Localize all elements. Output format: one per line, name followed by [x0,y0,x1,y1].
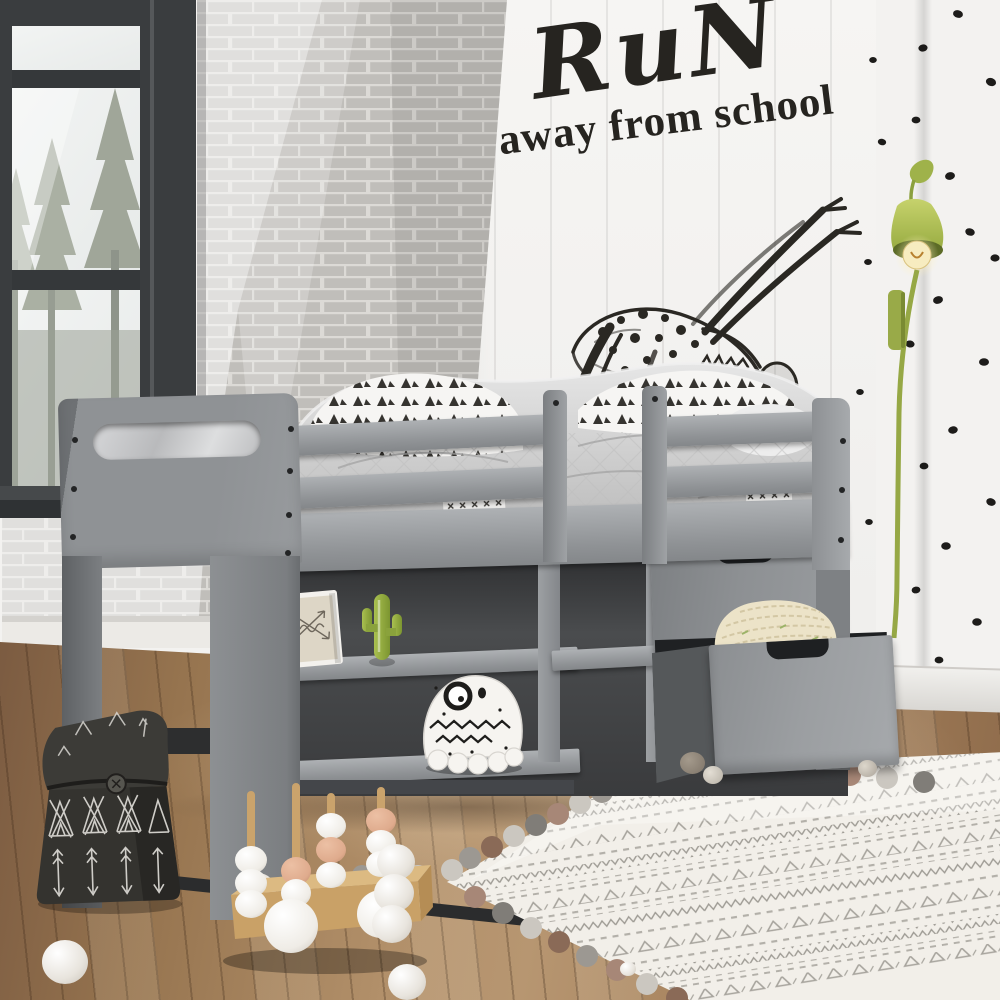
guard-rail-post [642,386,667,564]
headboard [58,393,302,569]
screw-dot [286,512,292,518]
pompom [703,766,723,784]
pompom [858,760,877,777]
guard-rail [658,411,833,447]
footboard [812,398,850,570]
white-ball [620,962,636,976]
storage-bag [20,694,198,916]
screw-dot [840,438,846,444]
screw-dot [287,468,293,474]
screw-dot [652,396,658,402]
white-ball [372,905,412,943]
screw-dot [70,534,76,540]
white-ball [388,964,426,1000]
screw-dot [288,426,294,432]
wall-lamp [868,158,964,642]
screw-dot [839,487,845,493]
headboard-slot [92,420,261,460]
plush-toy [414,662,534,776]
guard-rail-post [543,390,567,562]
screw-dot [553,400,559,406]
screw-dot [838,537,844,543]
screw-dot [72,437,78,443]
white-ball [42,940,88,984]
pompom [680,752,705,774]
drawer-handle-notch [766,639,829,660]
open-drawer-front [709,635,900,775]
screw-dot [285,550,291,556]
cactus-figurine [360,588,404,670]
bedroom-scene: RuN away from school [0,0,1000,1000]
screw-dot [71,486,77,492]
guard-rail [658,461,835,498]
